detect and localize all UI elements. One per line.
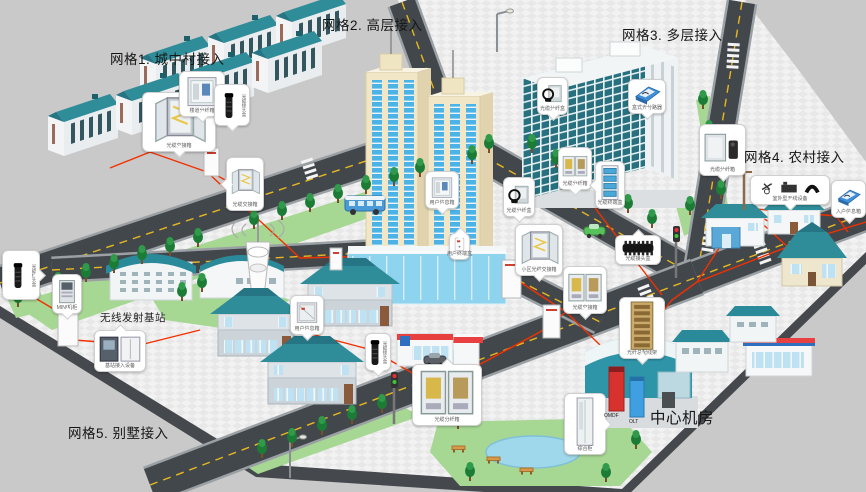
callout-cassette: 入户信息箱 — [831, 180, 866, 218]
mini-icon — [55, 277, 79, 306]
cassette-icon — [631, 82, 663, 106]
wallbox-dk-icon — [293, 298, 321, 327]
wireless-station-label: 无线发射基站 — [100, 310, 166, 325]
callout-label: 用户终端盒 — [447, 252, 472, 258]
callout-mini: MINI机柜 — [52, 274, 82, 314]
street-cabinet — [330, 248, 342, 270]
callout-label: 光缆接头盒 — [383, 341, 388, 364]
office-building — [672, 330, 732, 372]
coil-icon — [506, 180, 532, 209]
callout-cabinet-open: 小区光缆交接箱 — [515, 224, 563, 276]
callout-devices3: 室外型无线设备 — [750, 175, 830, 205]
callout-rack-white: 综合柜 — [564, 393, 606, 455]
callout-label: 光缆接头盒 — [625, 257, 650, 263]
callout-label: 光缆分纤箱 — [434, 418, 459, 424]
omdf-cabinet — [609, 367, 624, 411]
olt-cabinet — [630, 377, 644, 417]
cabinet-open-icon — [518, 227, 560, 268]
callout-closure-v: 光缆接头盒 — [214, 84, 250, 126]
callout-rack-blue: 光缆终端盒 — [595, 161, 625, 209]
callout-coil: 光缆分纤盒 — [537, 77, 568, 115]
callout-closure-f: 光缆接头盒 — [615, 235, 661, 265]
grid1-label: 网格1. 城中村接入 — [110, 48, 225, 68]
closure-v-icon — [217, 91, 241, 121]
callout-coil: 光缆分纤盒 — [503, 177, 535, 217]
odf-icon — [622, 300, 662, 351]
devices3-icon — [753, 178, 827, 197]
base-eq-icon — [97, 333, 143, 364]
cassette-icon — [834, 183, 863, 210]
callout-cassette: 盒式光分路器 — [628, 79, 666, 114]
callout-closure-v: 光缆接头盒 — [2, 250, 40, 300]
cabinet-two-icon — [566, 269, 604, 306]
coil-icon — [540, 80, 565, 107]
rack-white-icon — [567, 396, 603, 447]
callout-plate: 用户终端盒 — [449, 233, 470, 260]
callout-label: 综合柜 — [577, 447, 592, 453]
callout-cabinet-wall: 光缆分纤箱 — [699, 124, 746, 176]
cabinet-two-icon — [415, 367, 479, 418]
kiosk — [709, 222, 743, 248]
olt-label: OLT — [629, 419, 638, 425]
apartment-building — [48, 94, 118, 156]
callout-cabinet-open: 光缆交接箱 — [226, 157, 264, 211]
callout-label: 光缆交接箱 — [232, 203, 257, 209]
omdf-label: OMDF — [604, 413, 619, 419]
cabinet-wall-icon — [702, 127, 743, 168]
grid5-label: 网格5. 别墅接入 — [68, 422, 169, 442]
cabinet-open-icon — [229, 160, 261, 203]
callout-wallbox: 用户信息箱 — [425, 171, 459, 209]
street-cabinet — [543, 305, 560, 338]
callout-label: 光缆接头盒 — [242, 94, 247, 117]
street-cabinet — [204, 148, 219, 176]
cabinet-two-icon — [561, 150, 589, 182]
closure-v-icon — [368, 338, 382, 368]
callout-closure-v: 光缆接头盒 — [365, 333, 391, 371]
callout-cabinet-two: 光缆交接箱 — [563, 266, 607, 314]
callout-label: 光缆终端盒 — [598, 201, 623, 207]
callout-cabinet-two: 光缆分纤箱 — [412, 364, 482, 426]
office-building — [726, 306, 780, 342]
network-grid-diagram: 光缆交接箱楼道分纤箱光缆接头盒光缆交接箱光缆接头盒MINI机柜基站接入设备用户信… — [0, 0, 866, 492]
grid2-label: 网格2. 高层接入 — [322, 14, 423, 34]
central-room-label: 中心机房 — [650, 406, 714, 428]
callout-odf: 光纤总配线架 — [619, 297, 665, 359]
callout-label: 基站接入设备 — [105, 364, 135, 370]
fiber-route — [110, 152, 207, 172]
wallbox-icon — [428, 174, 456, 201]
grid4-label: 网格4. 农村接入 — [744, 146, 845, 166]
rack-blue-icon — [598, 164, 622, 201]
closure-v-icon — [5, 261, 31, 291]
store — [743, 338, 815, 376]
callout-cabinet-two: 光缆分纤箱 — [558, 147, 592, 190]
callout-base-eq: 基站接入设备 — [94, 330, 146, 372]
callout-wallbox-dk: 用户信息箱 — [290, 295, 324, 335]
grid3-label: 网格3. 多层接入 — [622, 24, 723, 44]
